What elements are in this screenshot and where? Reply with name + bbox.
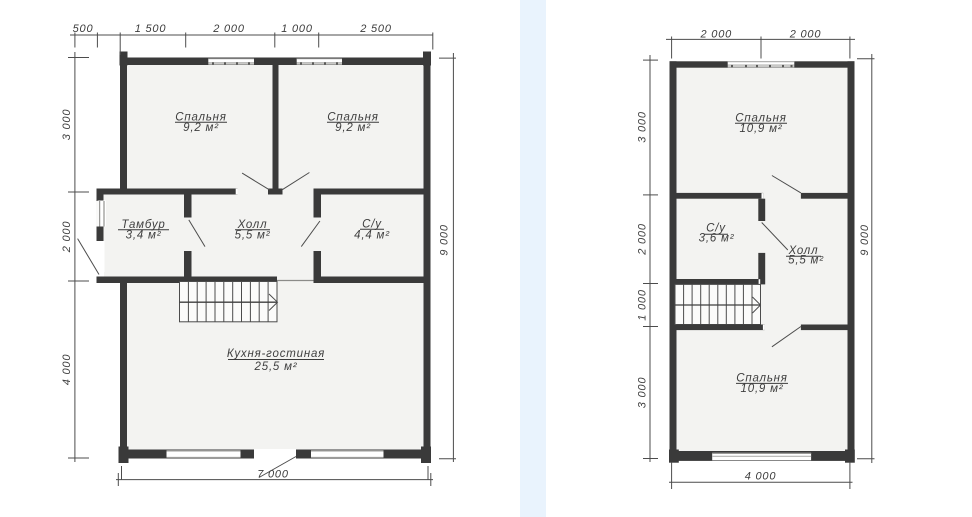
svg-text:9,2 м²: 9,2 м² <box>335 122 371 134</box>
svg-text:2 000: 2 000 <box>789 28 822 40</box>
svg-text:4 000: 4 000 <box>745 471 777 483</box>
svg-text:25,5 м²: 25,5 м² <box>254 361 298 373</box>
svg-text:4,4 м²: 4,4 м² <box>354 230 390 242</box>
svg-text:1 500: 1 500 <box>135 23 167 35</box>
svg-text:10,9 м²: 10,9 м² <box>741 383 784 395</box>
svg-text:5,5 м²: 5,5 м² <box>788 254 824 266</box>
svg-text:2 500: 2 500 <box>359 23 392 35</box>
svg-text:1 000: 1 000 <box>637 289 649 321</box>
svg-text:2 000: 2 000 <box>212 23 245 35</box>
svg-text:5,5 м²: 5,5 м² <box>235 230 271 242</box>
svg-text:500: 500 <box>73 23 94 35</box>
svg-text:3,6 м²: 3,6 м² <box>699 232 735 244</box>
svg-text:3 000: 3 000 <box>61 109 73 141</box>
svg-text:7 000: 7 000 <box>257 469 289 481</box>
svg-text:4 000: 4 000 <box>61 354 73 386</box>
svg-text:2 000: 2 000 <box>700 28 733 40</box>
svg-text:9 000: 9 000 <box>439 224 451 256</box>
svg-text:2 000: 2 000 <box>637 223 649 256</box>
svg-text:3 000: 3 000 <box>637 111 649 143</box>
svg-text:2 000: 2 000 <box>61 221 73 254</box>
svg-text:1 000: 1 000 <box>281 23 313 35</box>
svg-text:Кухня-гостиная: Кухня-гостиная <box>227 348 325 360</box>
svg-text:9 000: 9 000 <box>859 224 871 256</box>
svg-text:3 000: 3 000 <box>637 377 649 409</box>
svg-text:10,9 м²: 10,9 м² <box>740 123 783 135</box>
svg-text:9,2 м²: 9,2 м² <box>183 122 219 134</box>
svg-text:С/у: С/у <box>362 219 382 231</box>
svg-text:3,4 м²: 3,4 м² <box>126 230 162 242</box>
